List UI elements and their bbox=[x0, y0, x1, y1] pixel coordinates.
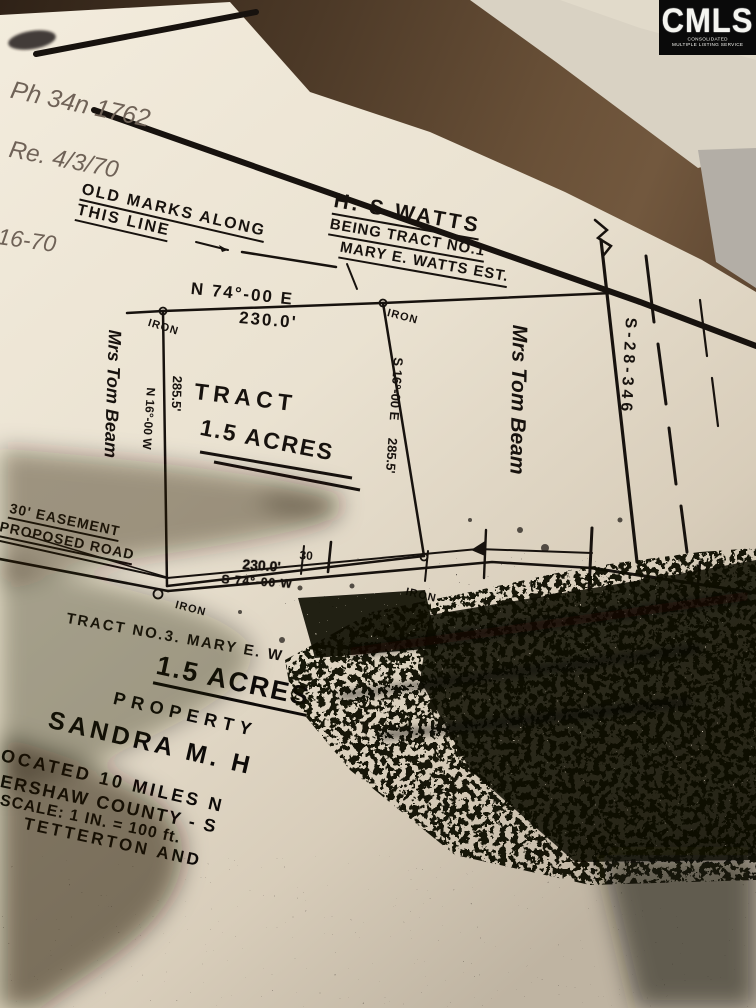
easement-width-label: 30 bbox=[299, 548, 313, 563]
cmls-logo: CMLS bbox=[662, 4, 754, 37]
west-distance-label: 285.5' bbox=[169, 375, 185, 411]
cmls-watermark-badge: CMLS CONSOLIDATED MULTIPLE LISTING SERVI… bbox=[659, 0, 756, 55]
neighbor-west-label: Mrs Tom Beam bbox=[100, 329, 125, 458]
cmls-tagline-line2: MULTIPLE LISTING SERVICE bbox=[672, 42, 743, 47]
cmls-tagline-line1: CONSOLIDATED bbox=[687, 37, 727, 42]
east-distance-label: 285.5' bbox=[383, 437, 400, 474]
south-distance-label: 230.0' bbox=[242, 556, 281, 575]
photo-of-plat-document: Ph 34n 1762 Re. 4/3/70 OLD MARKS ALONG T… bbox=[0, 0, 756, 1008]
cmls-tagline: CONSOLIDATED MULTIPLE LISTING SERVICE bbox=[672, 37, 743, 47]
plat-drawing-layer bbox=[0, 0, 756, 1008]
neighbor-east-label: Mrs Tom Beam bbox=[504, 325, 531, 475]
plat-paper bbox=[0, 2, 756, 1008]
